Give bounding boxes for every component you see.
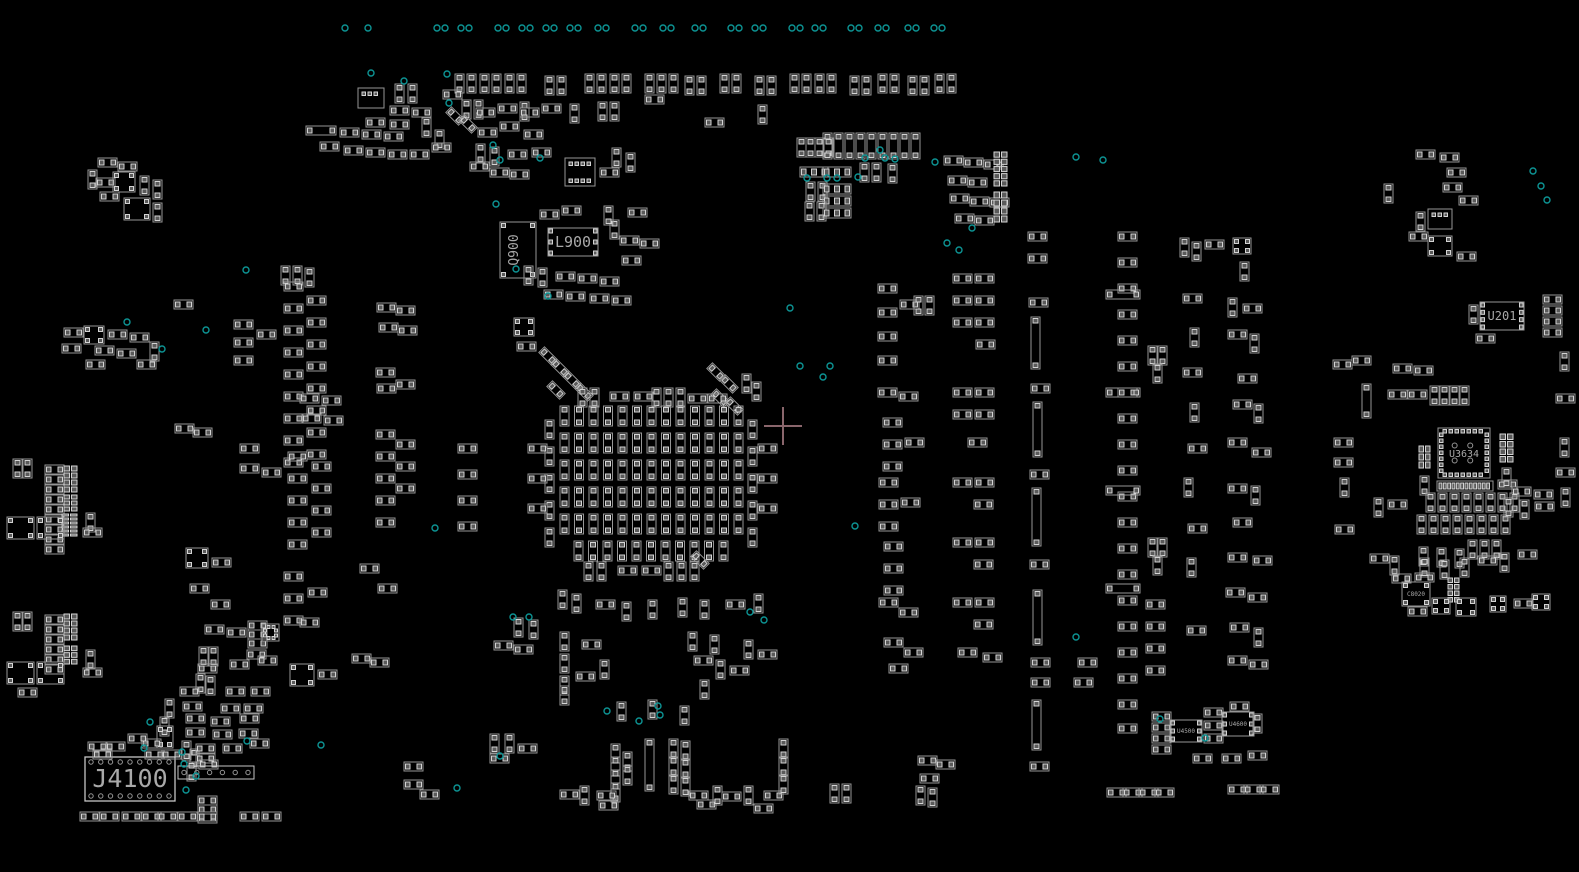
component-chip[interactable]	[633, 514, 642, 534]
component-chip[interactable]	[779, 739, 788, 758]
component-chip[interactable]	[705, 514, 714, 534]
component-chip[interactable]	[528, 444, 547, 453]
component-box[interactable]	[514, 318, 534, 336]
component-pad-array[interactable]	[1419, 446, 1430, 468]
component-chip[interactable]	[928, 788, 937, 807]
component-chip3[interactable]	[823, 196, 851, 206]
component-chip[interactable]	[240, 444, 259, 453]
component-chip[interactable]	[1118, 310, 1137, 319]
component-chip[interactable]	[681, 759, 690, 778]
via[interactable]	[812, 25, 818, 31]
component-chip[interactable]	[1228, 553, 1247, 562]
component-chip[interactable]	[878, 332, 897, 341]
component-chip[interactable]	[734, 460, 743, 480]
component-chip[interactable]	[732, 74, 741, 93]
component-chip[interactable]	[557, 76, 566, 95]
via[interactable]	[458, 25, 464, 31]
component-chip[interactable]	[1388, 390, 1407, 399]
component-chip[interactable]	[1340, 478, 1349, 497]
via[interactable]	[883, 25, 889, 31]
component-chip[interactable]	[884, 564, 903, 573]
component-chip[interactable]	[953, 318, 972, 327]
via[interactable]	[852, 523, 858, 529]
component-chip[interactable]	[1118, 232, 1137, 241]
component-chip[interactable]	[948, 176, 967, 185]
component-chip[interactable]	[633, 433, 642, 453]
component-chip[interactable]	[710, 635, 719, 654]
component-chip[interactable]	[284, 348, 303, 357]
component-chip[interactable]	[661, 541, 670, 561]
component-chip[interactable]	[1118, 622, 1137, 631]
component-chip[interactable]	[705, 460, 714, 480]
component-chip[interactable]	[1146, 622, 1165, 631]
component-chip[interactable]	[618, 487, 627, 507]
component-chip[interactable]	[262, 812, 281, 821]
component-chip[interactable]	[240, 812, 259, 821]
component-chip[interactable]	[1033, 402, 1042, 457]
component-chip[interactable]	[390, 120, 409, 129]
via[interactable]	[692, 25, 698, 31]
component-chip[interactable]	[680, 706, 689, 725]
component-chip[interactable]	[700, 600, 709, 619]
component-chip[interactable]	[1228, 484, 1247, 493]
component-chip[interactable]	[1204, 708, 1223, 717]
component-chip[interactable]	[1251, 486, 1260, 505]
component-box[interactable]	[290, 664, 314, 686]
component-chip[interactable]	[975, 410, 994, 419]
component-chip[interactable]	[806, 182, 815, 201]
via[interactable]	[527, 25, 533, 31]
component-chip[interactable]	[790, 74, 799, 93]
via[interactable]	[700, 25, 706, 31]
component-chip[interactable]	[458, 496, 477, 505]
component-chip[interactable]	[634, 392, 653, 401]
component-chip[interactable]	[748, 501, 757, 520]
component-chip[interactable]	[1233, 518, 1252, 527]
component-chip[interactable]	[562, 206, 581, 215]
component-chip[interactable]	[153, 203, 162, 222]
component-chip[interactable]	[490, 734, 499, 753]
component-chip[interactable]	[1441, 515, 1450, 534]
component-chip[interactable]	[545, 447, 554, 466]
component-chip[interactable]	[1118, 596, 1137, 605]
component-chip[interactable]	[500, 122, 519, 131]
component-chip[interactable]	[376, 430, 395, 439]
component-chip[interactable]	[734, 487, 743, 507]
component-chip[interactable]	[677, 562, 686, 581]
component-chip[interactable]	[575, 487, 584, 507]
component-chip[interactable]	[422, 118, 431, 137]
component-chip[interactable]	[1192, 242, 1201, 261]
component-chip[interactable]	[884, 638, 903, 647]
component-chip[interactable]	[288, 540, 307, 549]
component-chip[interactable]	[378, 584, 397, 593]
component-chip[interactable]	[1254, 628, 1263, 647]
component-chip[interactable]	[968, 178, 987, 187]
component-chip[interactable]	[676, 514, 685, 534]
via[interactable]	[124, 319, 130, 325]
component-chip[interactable]	[618, 514, 627, 534]
component-chip[interactable]	[632, 541, 641, 561]
component-chip[interactable]	[1180, 238, 1189, 257]
component-chip[interactable]	[376, 452, 395, 461]
component-chip[interactable]	[883, 440, 902, 449]
component-chip[interactable]	[878, 74, 887, 93]
component-box[interactable]	[7, 662, 34, 684]
via[interactable]	[827, 363, 833, 369]
component-ic[interactable]	[565, 158, 595, 186]
component-chip[interactable]	[888, 164, 897, 183]
component-chip[interactable]	[96, 178, 115, 187]
component-chip[interactable]	[647, 541, 656, 561]
component-chip[interactable]	[1250, 334, 1259, 353]
via[interactable]	[454, 785, 460, 791]
component-chip[interactable]	[623, 766, 632, 785]
component-chip[interactable]	[584, 562, 593, 581]
component-chip[interactable]	[312, 528, 331, 537]
component-chip[interactable]	[645, 74, 654, 93]
component-chip[interactable]	[955, 214, 974, 223]
component-chip[interactable]	[1253, 556, 1272, 565]
component-chip[interactable]	[1148, 538, 1157, 557]
component-chip[interactable]	[45, 475, 64, 484]
component-chip[interactable]	[528, 504, 547, 513]
component-chip[interactable]	[307, 340, 326, 349]
component-chip[interactable]	[642, 566, 661, 575]
component-chip[interactable]	[560, 406, 569, 426]
component-chip[interactable]	[610, 74, 619, 93]
via[interactable]	[728, 25, 734, 31]
component-box[interactable]	[1532, 594, 1550, 610]
component-chip[interactable]	[205, 625, 224, 634]
via[interactable]	[147, 719, 153, 725]
component-chip[interactable]	[1457, 252, 1476, 261]
via[interactable]	[543, 25, 549, 31]
component-chip[interactable]	[664, 562, 673, 581]
component-box[interactable]	[186, 548, 208, 568]
component-chip[interactable]	[1462, 493, 1471, 512]
component-chip[interactable]	[1033, 590, 1042, 645]
component-chip[interactable]	[603, 541, 612, 561]
component-chip[interactable]	[662, 433, 671, 453]
component-chip[interactable]	[352, 654, 371, 663]
component-chip[interactable]	[720, 74, 729, 93]
component-chip[interactable]	[23, 612, 32, 631]
component-chip[interactable]	[1474, 493, 1483, 512]
component-chip[interactable]	[377, 384, 396, 393]
component-chip[interactable]	[648, 600, 657, 619]
component-chip[interactable]	[657, 74, 666, 93]
via[interactable]	[944, 240, 950, 246]
component-chip[interactable]	[622, 256, 641, 265]
component-chip[interactable]	[968, 438, 987, 447]
component-chip[interactable]	[676, 460, 685, 480]
component-chip[interactable]	[1543, 317, 1562, 326]
component-chip[interactable]	[1560, 352, 1569, 371]
component-chip[interactable]	[420, 790, 439, 799]
component-chip[interactable]	[100, 812, 119, 821]
component-chip[interactable]	[884, 586, 903, 595]
component-chip[interactable]	[396, 306, 415, 315]
component-chip[interactable]	[1158, 538, 1167, 557]
component-chip[interactable]	[505, 734, 514, 753]
via[interactable]	[510, 614, 516, 620]
component-chip[interactable]	[589, 514, 598, 534]
component-chip[interactable]	[734, 433, 743, 453]
component-chip[interactable]	[622, 74, 631, 93]
component-chip[interactable]	[975, 274, 994, 283]
component-chip-rotated[interactable]	[720, 375, 738, 393]
component-chip[interactable]	[575, 514, 584, 534]
component-chip[interactable]	[86, 650, 95, 669]
component-chip[interactable]	[705, 406, 714, 426]
component-chip[interactable]	[1190, 403, 1199, 422]
component-chip[interactable]	[662, 460, 671, 480]
via[interactable]	[787, 305, 793, 311]
component-box[interactable]	[7, 517, 34, 539]
via[interactable]	[655, 703, 661, 709]
component-chip[interactable]	[230, 660, 249, 669]
component-chip[interactable]	[1443, 183, 1462, 192]
component-chip[interactable]	[410, 150, 429, 159]
component-chip[interactable]	[213, 730, 232, 739]
component-chip[interactable]	[1362, 384, 1371, 418]
component-chip[interactable]	[1447, 168, 1466, 177]
component-chip[interactable]	[318, 670, 337, 679]
component-chip[interactable]	[610, 102, 619, 121]
component-chip[interactable]	[1028, 232, 1047, 241]
component-chip[interactable]	[884, 542, 903, 551]
component-chip[interactable]	[239, 729, 258, 738]
component-ic[interactable]	[358, 88, 384, 108]
component-chip[interactable]	[589, 433, 598, 453]
component-chip[interactable]	[1030, 470, 1049, 479]
via[interactable]	[657, 712, 663, 718]
component-chip[interactable]	[1188, 524, 1207, 533]
component-chip[interactable]	[1370, 554, 1389, 563]
component-chip[interactable]	[604, 460, 613, 480]
component-chip[interactable]	[250, 739, 269, 748]
component-chip[interactable]	[1226, 588, 1245, 597]
via[interactable]	[444, 71, 450, 77]
component-chip[interactable]	[544, 290, 563, 299]
component-chip[interactable]	[1146, 666, 1165, 675]
component-chip[interactable]	[524, 130, 543, 139]
component-chip[interactable]	[545, 420, 554, 439]
component-chip[interactable]	[604, 487, 613, 507]
via[interactable]	[1073, 154, 1079, 160]
component-chip[interactable]	[198, 796, 217, 805]
component-chip[interactable]	[560, 654, 569, 673]
component-chip[interactable]	[983, 653, 1002, 662]
component-chip[interactable]	[45, 545, 64, 554]
component-chip[interactable]	[958, 648, 977, 657]
via[interactable]	[931, 25, 937, 31]
component-chip[interactable]	[556, 272, 575, 281]
component-chip[interactable]	[234, 338, 253, 347]
component-chip[interactable]	[953, 296, 972, 305]
component-chip[interactable]	[45, 635, 64, 644]
component-chip[interactable]	[498, 104, 517, 113]
component-chip[interactable]	[542, 104, 561, 113]
component-chip[interactable]	[748, 474, 757, 493]
component-chip[interactable]	[618, 406, 627, 426]
component-chip[interactable]	[248, 639, 267, 648]
component-box[interactable]	[84, 326, 104, 344]
component-chip[interactable]	[1205, 240, 1224, 249]
component-chip[interactable]	[1230, 702, 1249, 711]
component-chip[interactable]	[211, 600, 230, 609]
component-chip[interactable]	[860, 163, 869, 182]
component-chip[interactable]	[604, 514, 613, 534]
component-chip[interactable]	[975, 216, 994, 225]
component-chip[interactable]	[1514, 599, 1533, 608]
component-chip[interactable]	[324, 416, 343, 425]
component-chip[interactable]	[610, 392, 629, 401]
component-chip[interactable]	[720, 487, 729, 507]
component-box[interactable]	[113, 172, 135, 192]
component-chip[interactable]	[901, 498, 920, 507]
component-chip[interactable]	[647, 406, 656, 426]
component-chip[interactable]	[676, 433, 685, 453]
component-chip[interactable]	[528, 474, 547, 483]
component-chip[interactable]	[1078, 658, 1097, 667]
component-chip[interactable]	[95, 346, 114, 355]
via[interactable]	[640, 25, 646, 31]
component-chip[interactable]	[1238, 374, 1257, 383]
component-chip[interactable]	[664, 388, 673, 407]
component-chip[interactable]	[920, 76, 929, 95]
component-chip[interactable]	[685, 76, 694, 95]
component-chip[interactable]	[174, 300, 193, 309]
component-chip[interactable]	[691, 406, 700, 426]
component-chip[interactable]	[720, 460, 729, 480]
component-chip[interactable]	[1240, 262, 1249, 281]
component-chip[interactable]	[458, 444, 477, 453]
component-chip[interactable]	[1031, 678, 1050, 687]
via[interactable]	[595, 25, 601, 31]
component-chip[interactable]	[1118, 700, 1137, 709]
component-chip[interactable]	[384, 132, 403, 141]
component-chip[interactable]	[226, 687, 245, 696]
component-chip[interactable]	[199, 647, 208, 666]
via[interactable]	[875, 25, 881, 31]
component-chip[interactable]	[396, 380, 415, 389]
component-chip[interactable]	[975, 538, 994, 547]
component-chip[interactable]	[688, 632, 697, 651]
component-chip[interactable]	[64, 328, 83, 337]
component-chip[interactable]	[1106, 584, 1140, 593]
component-chip[interactable]	[944, 156, 963, 165]
component-chip[interactable]	[98, 158, 117, 167]
via[interactable]	[203, 327, 209, 333]
component-chip[interactable]	[145, 750, 164, 759]
component-chip[interactable]	[45, 505, 64, 514]
component-chip[interactable]	[889, 133, 898, 159]
component-chip[interactable]	[1032, 700, 1041, 750]
via[interactable]	[434, 25, 440, 31]
component-chip[interactable]	[662, 406, 671, 426]
component-chip[interactable]	[889, 664, 908, 673]
component-chip[interactable]	[669, 757, 678, 776]
component-chip[interactable]	[240, 714, 259, 723]
via[interactable]	[969, 225, 975, 231]
component-chip[interactable]	[748, 447, 757, 466]
via[interactable]	[905, 25, 911, 31]
via[interactable]	[432, 525, 438, 531]
component-chip[interactable]	[130, 333, 149, 342]
via[interactable]	[318, 742, 324, 748]
component-chip[interactable]	[1560, 438, 1569, 457]
component-chip[interactable]	[1118, 570, 1137, 579]
component-chip[interactable]	[284, 370, 303, 379]
component-chip[interactable]	[730, 666, 749, 675]
component-chip[interactable]	[312, 484, 331, 493]
component-chip[interactable]	[596, 600, 615, 609]
component-chip[interactable]	[900, 133, 909, 159]
component-chip[interactable]	[306, 126, 336, 135]
component-chip[interactable]	[678, 598, 687, 617]
component-chip3[interactable]	[823, 208, 851, 218]
component-chip[interactable]	[1193, 754, 1212, 763]
component-chip[interactable]	[140, 176, 149, 195]
component-chip[interactable]	[560, 433, 569, 453]
component-chip[interactable]	[244, 704, 263, 713]
component-chip[interactable]	[1230, 623, 1249, 632]
component-box[interactable]	[1490, 596, 1506, 612]
via[interactable]	[632, 25, 638, 31]
component-chip[interactable]	[620, 236, 639, 245]
via[interactable]	[244, 738, 250, 744]
component-box[interactable]	[1456, 598, 1476, 616]
component-chip[interactable]	[1031, 317, 1040, 369]
component-chip[interactable]	[647, 460, 656, 480]
component-chip[interactable]	[1489, 515, 1498, 534]
component-chip[interactable]	[540, 210, 559, 219]
component-chip[interactable]	[585, 74, 594, 93]
component-chip[interactable]	[953, 410, 972, 419]
component-chip[interactable]	[911, 133, 920, 159]
component-chip[interactable]	[206, 676, 215, 695]
component-chip[interactable]	[412, 108, 431, 117]
component-chip[interactable]	[545, 528, 554, 547]
component-chip[interactable]	[376, 368, 395, 377]
via-layer[interactable]	[124, 25, 1550, 793]
component-chip[interactable]	[370, 658, 389, 667]
component-chip[interactable]	[974, 620, 993, 629]
component-chip[interactable]	[1334, 458, 1353, 467]
component-chip[interactable]	[1187, 626, 1206, 635]
component-chip[interactable]	[178, 812, 197, 821]
component-chip[interactable]	[879, 522, 898, 531]
component-chip[interactable]	[920, 774, 939, 783]
component-chip[interactable]	[1476, 334, 1495, 343]
component-chip[interactable]	[975, 318, 994, 327]
component-chip[interactable]	[340, 128, 359, 137]
component-chip[interactable]	[388, 150, 407, 159]
component-chip[interactable]	[575, 460, 584, 480]
component-chip[interactable]	[458, 470, 477, 479]
component-chip[interactable]	[626, 153, 635, 172]
component-chip[interactable]	[1486, 493, 1495, 512]
component-chip[interactable]	[705, 118, 724, 127]
component-chip[interactable]	[1148, 346, 1157, 365]
component-chip[interactable]	[377, 303, 396, 312]
component-chip[interactable]	[618, 541, 627, 561]
component-chip[interactable]	[362, 130, 381, 139]
component-chip[interactable]	[953, 388, 972, 397]
component-chip[interactable]	[320, 142, 339, 151]
